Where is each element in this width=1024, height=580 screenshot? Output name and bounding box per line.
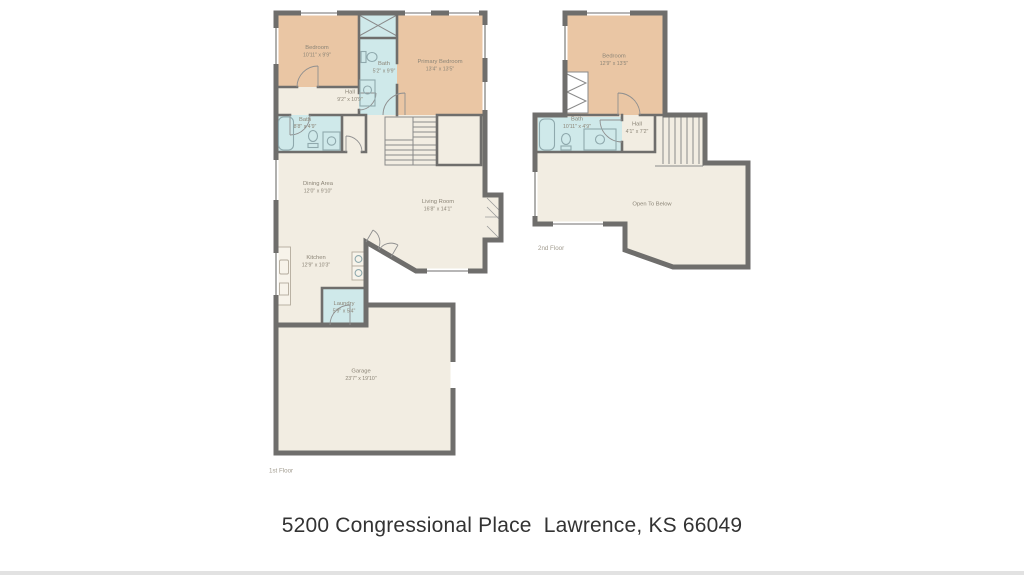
room-label: Bath (571, 117, 583, 123)
room-label: Garage (351, 369, 370, 375)
room-dims: 12'0" x 9'10" (304, 189, 333, 195)
floor-label-first: 1st Floor (269, 468, 293, 475)
footer-strip (0, 571, 1024, 575)
garage-side-door (451, 362, 456, 388)
room-dims: 13'4" x 13'5" (426, 67, 455, 73)
room-dims: 16'8" x 14'1" (424, 207, 453, 213)
room-dims: 12'9" x 10'3" (302, 263, 331, 269)
room-label: Living Room (422, 199, 454, 205)
room-label: Bedroom (602, 54, 626, 60)
room-label: Bedroom (305, 45, 329, 51)
room-label: Primary Bedroom (417, 59, 462, 65)
floorplan-drawing: Bedroom 10'11" x 9'9" Bath 5'2" x 9'9" P… (0, 0, 1024, 575)
room-dims: 12'9" x 13'5" (600, 61, 629, 67)
room-label: Open To Below (632, 202, 672, 208)
room-label: Hall (345, 90, 355, 96)
room-dims: 10'11" x 4'9" (563, 124, 591, 130)
address-title: 5200 Congressional Place Lawrence, KS 66… (0, 514, 1024, 538)
room-label: Dining Area (303, 181, 334, 187)
room-label: Hall (632, 122, 642, 128)
room-dims: 8'8" x 4'9" (294, 124, 317, 130)
room-dims: 5'9" x 5'4" (333, 309, 356, 315)
closet-bifold (566, 72, 588, 113)
room-label: Bath (378, 61, 390, 67)
second-floor-plan: Bedroom 12'9" x 13'5" Bath 10'11" x 4'9"… (533, 11, 749, 268)
floor-label-second: 2nd Floor (538, 245, 564, 252)
room-dims: 5'2" x 9'9" (373, 69, 396, 75)
room-label: Laundry (334, 301, 355, 307)
room-label: Bath (299, 117, 311, 123)
first-floor-plan: Bedroom 10'11" x 9'9" Bath 5'2" x 9'9" P… (269, 11, 501, 475)
room-dims: 10'11" x 9'9" (303, 53, 331, 59)
floorplan-canvas: Bedroom 10'11" x 9'9" Bath 5'2" x 9'9" P… (0, 0, 1024, 575)
room-label: Kitchen (306, 255, 325, 261)
room-dims: 9'2" x 10'9" (337, 97, 363, 103)
room-dims: 4'1" x 7'2" (626, 129, 649, 135)
room-dims: 23'7" x 19'10" (345, 376, 376, 382)
